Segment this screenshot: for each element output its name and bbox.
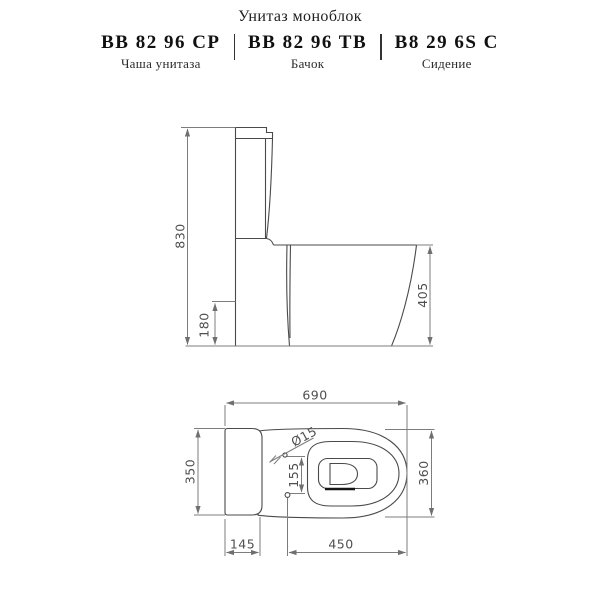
product-codes-row: BB 82 96 CP Чаша унитаза BB 82 96 TB Бач… [0, 33, 600, 72]
technical-drawing-sheet: 830 180 405 [0, 0, 600, 600]
side-bowl-front-curve [392, 245, 417, 346]
dim-total-width: 690 [302, 388, 327, 403]
product-seat-code: B8 29 6S C [395, 33, 499, 53]
product-bowl: BB 82 96 CP Чаша унитаза [101, 33, 220, 72]
dim-tank-depth: 145 [230, 537, 255, 552]
product-bowl-label: Чаша унитаза [121, 56, 201, 72]
side-pedestal-contour [287, 245, 290, 346]
header: Унитаз моноблок BB 82 96 CP Чаша унитаза… [0, 8, 600, 72]
side-tank-lid [236, 128, 273, 139]
top-tank-outline [225, 429, 262, 516]
product-tank-code: BB 82 96 TB [248, 33, 367, 53]
toilet-technical-drawing: 830 180 405 [0, 0, 600, 600]
mounting-hole-bottom [285, 493, 290, 498]
side-tank-front [267, 139, 273, 239]
product-bowl-code: BB 82 96 CP [101, 33, 220, 53]
dim-tank-width: 350 [182, 459, 197, 484]
dim-bowl-height: 405 [415, 282, 430, 307]
product-seat-label: Сидение [422, 56, 472, 72]
top-view [225, 429, 407, 519]
side-tank-shelf [236, 239, 274, 246]
page-title: Унитаз моноблок [0, 8, 600, 26]
product-tank: BB 82 96 TB Бачок [248, 33, 367, 72]
side-view [236, 128, 417, 347]
side-view-dimensions [181, 128, 433, 347]
product-tank-label: Бачок [291, 56, 325, 72]
product-seat: B8 29 6S C Сидение [395, 33, 499, 72]
dim-inlet-height: 180 [196, 312, 211, 337]
dim-bowl-depth: 450 [328, 537, 353, 552]
dim-hole-spacing: 155 [286, 462, 301, 487]
divider [380, 34, 382, 60]
dim-total-height: 830 [172, 223, 187, 248]
dim-bowl-width: 360 [416, 460, 431, 485]
divider [234, 34, 236, 60]
